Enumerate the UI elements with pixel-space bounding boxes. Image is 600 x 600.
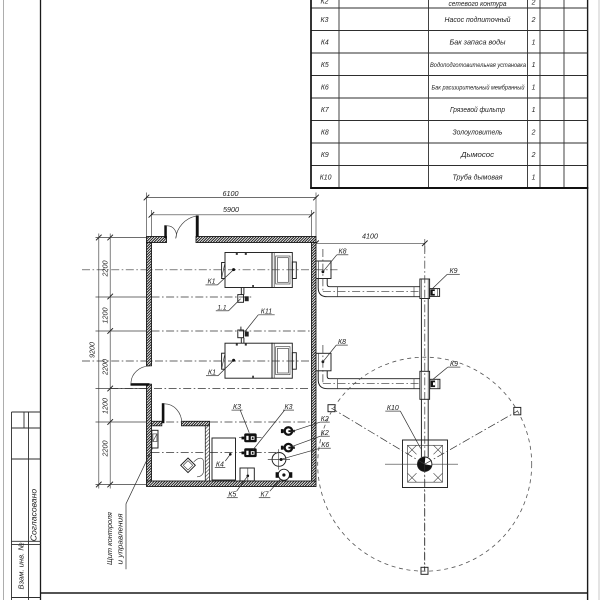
- svg-text:4100: 4100: [362, 232, 378, 241]
- svg-text:1: 1: [532, 107, 536, 114]
- svg-text:5900: 5900: [223, 205, 239, 214]
- svg-text:1200: 1200: [101, 308, 110, 324]
- svg-text:К10: К10: [320, 174, 332, 181]
- svg-text:2200: 2200: [101, 359, 110, 376]
- svg-text:1: 1: [532, 62, 536, 69]
- svg-text:2: 2: [531, 129, 536, 136]
- svg-text:и управления: и управления: [117, 513, 124, 564]
- svg-text:К6: К6: [321, 84, 329, 91]
- svg-text:К5: К5: [321, 62, 329, 69]
- svg-text:Щит контроля: Щит контроля: [107, 512, 114, 565]
- svg-text:9200: 9200: [87, 342, 96, 358]
- svg-text:Водоподготовительная установка: Водоподготовительная установка: [430, 61, 526, 69]
- svg-text:1: 1: [532, 174, 536, 181]
- svg-text:2200: 2200: [101, 441, 110, 458]
- svg-text:2: 2: [531, 0, 536, 7]
- svg-text:1: 1: [532, 39, 536, 46]
- svg-text:Согласовано: Согласовано: [28, 489, 38, 542]
- svg-text:Насос подпиточный: Насос подпиточный: [445, 16, 511, 24]
- svg-text:Дымосос: Дымосос: [460, 152, 495, 159]
- svg-text:2: 2: [531, 17, 536, 24]
- svg-text:К4: К4: [321, 39, 329, 46]
- svg-text:1200: 1200: [101, 398, 110, 414]
- svg-text:К3: К3: [321, 17, 329, 24]
- svg-text:сетевого контура: сетевого контура: [449, 1, 507, 8]
- svg-text:Бак расширительный мембранный: Бак расширительный мембранный: [432, 83, 525, 91]
- svg-text:Грязевой фильтр: Грязевой фильтр: [450, 106, 505, 114]
- svg-text:Взам. инв. №: Взам. инв. №: [16, 543, 25, 590]
- svg-text:К9: К9: [321, 152, 329, 159]
- svg-text:1: 1: [532, 84, 536, 91]
- svg-text:К8: К8: [321, 129, 329, 136]
- svg-text:К2: К2: [321, 0, 329, 6]
- svg-text:Золоуловитель: Золоуловитель: [453, 129, 503, 136]
- svg-text:2200: 2200: [101, 261, 110, 278]
- svg-text:Бак запаса воды: Бак запаса воды: [450, 38, 506, 46]
- svg-text:К7: К7: [321, 107, 330, 114]
- svg-text:6100: 6100: [223, 189, 239, 198]
- svg-text:2: 2: [531, 152, 536, 159]
- svg-text:Труба дымовая: Труба дымовая: [453, 173, 503, 181]
